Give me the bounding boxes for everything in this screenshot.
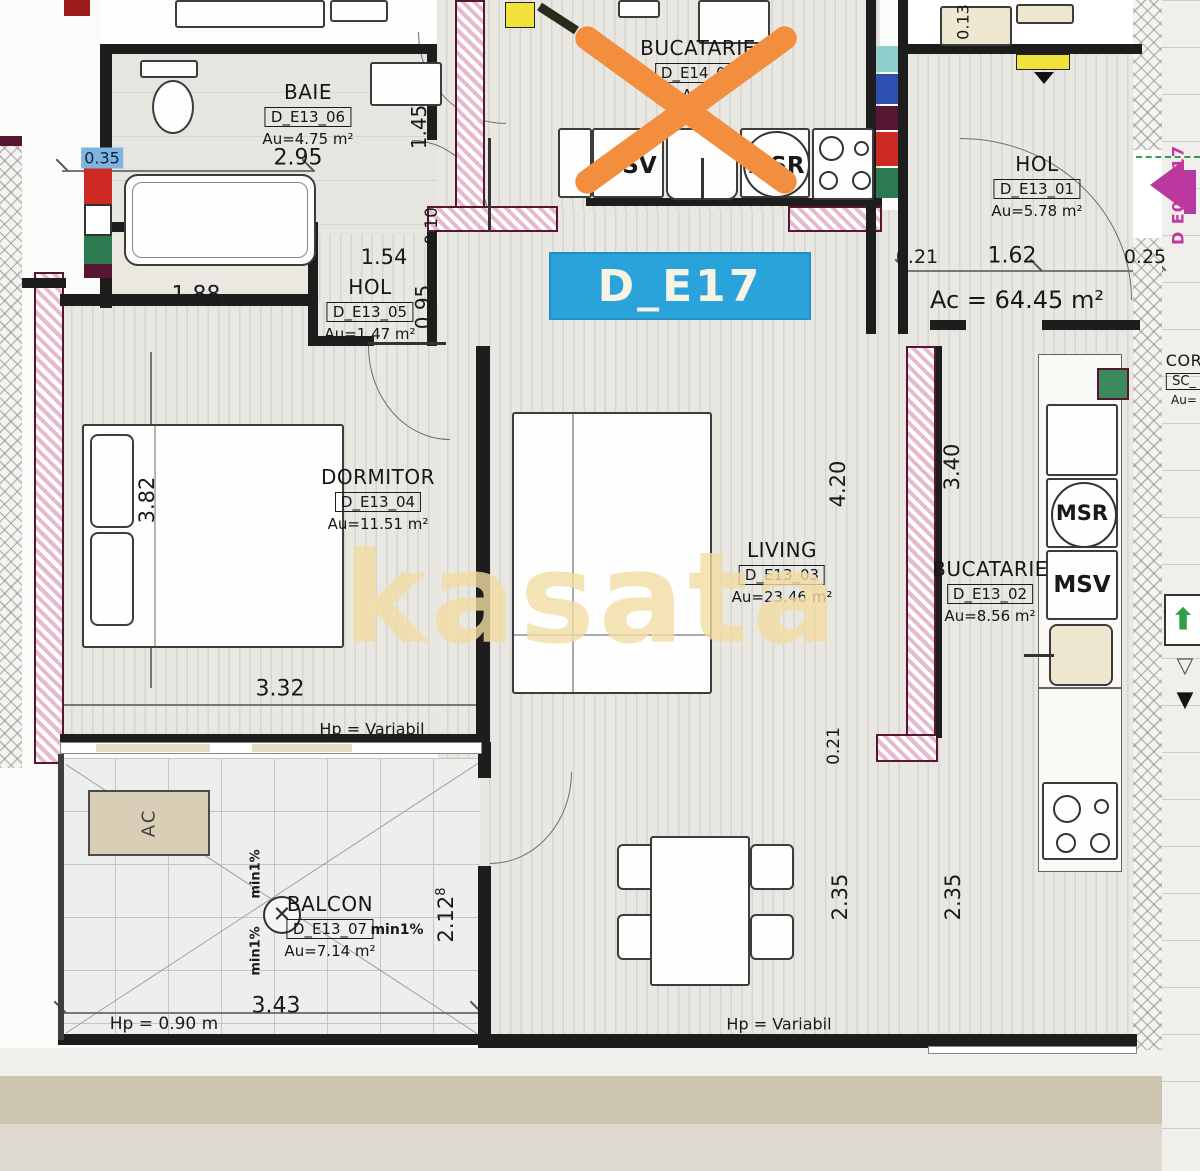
wall-exterior-left [34, 272, 64, 764]
wall [930, 320, 966, 330]
room-name: BUCATARIE [932, 557, 1048, 581]
dim-baie-door: 1.45 [407, 105, 431, 150]
dim-kitchen-height: 3.40 [940, 444, 964, 491]
room-label-hol-mid: HOL D_E13_05 Au=1.47 m² [324, 275, 415, 343]
dim-balcon-height-sup: 8 [434, 887, 449, 895]
cabinet [618, 0, 660, 18]
room-name: HOL [348, 275, 391, 299]
bed-line [154, 426, 156, 646]
room-label-coridor: COR SC_ Au= [1166, 351, 1200, 407]
triangle-down-outline-icon: ▽ [1177, 654, 1194, 679]
dim-hol-b: 1.62 [988, 244, 1037, 269]
dim-baie-width: 2.95 [274, 146, 323, 171]
ground-band-tan [0, 1076, 1162, 1124]
dim-hol-c: 0.25 [1124, 246, 1166, 268]
fridge [1046, 404, 1118, 476]
dim-line [62, 704, 480, 706]
wall-block-cyan [876, 46, 898, 72]
dim-kitchen-bottom: 2.35 [941, 874, 965, 921]
appliance-label-msr-right: MSR [1056, 501, 1108, 525]
room-area: Au= [1171, 393, 1197, 407]
balcony-rail-bottom [58, 1034, 482, 1045]
entrance-door-label: D E09/E17 [1169, 145, 1188, 245]
wall-block-maroon [0, 136, 22, 146]
dim-balcon-height: 2.128 [434, 887, 458, 942]
wall [100, 44, 437, 54]
appliance-label-msv-right: MSV [1053, 572, 1110, 598]
dim-dorm-height: 3.82 [135, 477, 159, 524]
wall [22, 278, 66, 288]
dim-left-top: 0.35 [81, 148, 123, 169]
room-label-bucatarie-right: BUCATARIE D_E13_02 Au=8.56 m² [932, 557, 1048, 625]
dining-table [650, 836, 750, 986]
dim-dorm-top: 1.88 [172, 283, 221, 308]
wall-crosshatch-right [1133, 0, 1162, 150]
chair [750, 844, 794, 890]
ground-band-gray [0, 1124, 1162, 1171]
room-code: D_E13_05 [327, 302, 413, 322]
wall-living-kitchen [906, 346, 936, 738]
wall-crosshatch-left [0, 136, 22, 768]
wall-block-blue [876, 74, 898, 104]
dim-living-wall: 0.21 [824, 727, 844, 765]
room-code: D_E13_07 [287, 919, 373, 939]
toilet-tank [140, 60, 198, 78]
wall-block-darkred [64, 0, 90, 16]
slope-annotation: min1% [370, 922, 423, 938]
chair [750, 914, 794, 960]
room-label-dormitor: DORMITOR D_E13_04 Au=11.51 m² [321, 465, 435, 533]
room-name: DORMITOR [321, 465, 435, 489]
room-code: D_E13_04 [335, 492, 421, 512]
dim-holmid-wall: 0.10 [422, 207, 442, 245]
stairs-up-icon: ⬆ [1170, 603, 1195, 638]
kitchen-sink [1049, 624, 1113, 686]
room-area: Au=8.56 m² [944, 607, 1035, 625]
room-area: Au=7.14 m² [284, 942, 375, 960]
cabinet [1016, 4, 1074, 24]
wall-crosshatch-right [1133, 238, 1162, 1050]
balcony-rail-left [58, 754, 64, 1040]
room-name: COR [1166, 351, 1200, 370]
burner [819, 136, 844, 161]
room-name: HOL [1015, 152, 1058, 176]
wall-block-white [84, 204, 112, 236]
room-label-hol-right: HOL D_E13_01 Au=5.78 m² [991, 152, 1082, 220]
burner [854, 141, 869, 156]
wall [898, 44, 1142, 54]
room-name: BALCON [287, 892, 373, 916]
hp-annotation-dormitor: Hp = Variabil [319, 720, 424, 739]
burner [852, 171, 871, 190]
dim-living-height: 4.20 [826, 461, 850, 508]
sink-tap [701, 158, 704, 200]
slope-annotation: min1% [249, 849, 264, 898]
wall-block-red [84, 168, 112, 204]
wall-block-red [876, 132, 898, 166]
wall [936, 346, 942, 738]
ac-unit-label: AC [139, 809, 160, 838]
wall-block-green [84, 236, 112, 264]
wall-l-foot [876, 734, 938, 762]
window-sill [96, 744, 210, 752]
wall [478, 866, 491, 1038]
burner [1090, 833, 1110, 853]
dim-top-right: 0.13 [954, 4, 973, 40]
room-area: Au=1.47 m² [324, 325, 415, 343]
burner [1056, 833, 1076, 853]
unit-banner: D_E17 [549, 252, 811, 320]
cabinet [175, 0, 325, 28]
door-leaf [488, 138, 491, 232]
dim-hol-a: 0.21 [896, 246, 938, 268]
burner [819, 171, 838, 190]
wall-block-maroon [84, 264, 112, 278]
window-marker-yellow [1016, 54, 1070, 70]
watermark: kasata [343, 525, 841, 672]
wall-band [427, 206, 558, 232]
sink-tap [1024, 654, 1054, 657]
floor-plan: AC ✕ BAIE D_E13_06 Au=4.75 m² BUCATARIE … [0, 0, 1200, 1171]
pillow [90, 532, 134, 626]
room-code: D_E13_06 [265, 107, 351, 127]
counter-block-green [1097, 368, 1129, 400]
cabinet [330, 0, 388, 22]
wall [928, 1034, 1137, 1046]
wall-block-green [876, 168, 898, 198]
wall [1042, 320, 1140, 330]
dim-balcon-height-main: 2.12 [434, 896, 458, 943]
pillow [90, 434, 134, 528]
dim-living-bottom: 2.35 [828, 874, 852, 921]
toilet-bowl [152, 80, 194, 134]
wall-kitchen-left [455, 0, 485, 210]
room-code: D_E13_01 [994, 179, 1080, 199]
room-label-baie: BAIE D_E13_06 Au=4.75 m² [262, 80, 353, 148]
slope-annotation: min1% [249, 926, 264, 975]
room-name: BAIE [284, 80, 332, 104]
total-area-label: Ac = 64.45 m² [930, 286, 1104, 314]
dim-dorm-width: 3.32 [256, 677, 305, 702]
hp-annotation-living: Hp = Variabil [726, 1015, 831, 1034]
wall-block-maroon [876, 106, 898, 130]
cabinet [940, 6, 1012, 46]
dim-holmid-height: 0.95 [411, 285, 435, 330]
washbasin [370, 62, 442, 106]
room-area: Au=5.78 m² [991, 202, 1082, 220]
room-code: D_E13_02 [947, 584, 1033, 604]
window-sill [252, 744, 352, 752]
door-marker-yellow [505, 2, 535, 28]
triangle-down-filled-icon: ▼ [1177, 688, 1194, 713]
burner [1094, 799, 1109, 814]
burner [1053, 795, 1081, 823]
hp-annotation-balcon: Hp = 0.90 m [110, 1014, 218, 1034]
bathtub-inner [132, 182, 308, 258]
dim-balcon-width: 3.43 [252, 994, 301, 1019]
marker-triangle [1034, 72, 1054, 84]
room-code: SC_ [1166, 373, 1200, 390]
room-label-balcon: BALCON D_E13_07 Au=7.14 m² [284, 892, 375, 960]
window-band [928, 1046, 1137, 1054]
dim-holmid-width: 1.54 [361, 245, 408, 269]
